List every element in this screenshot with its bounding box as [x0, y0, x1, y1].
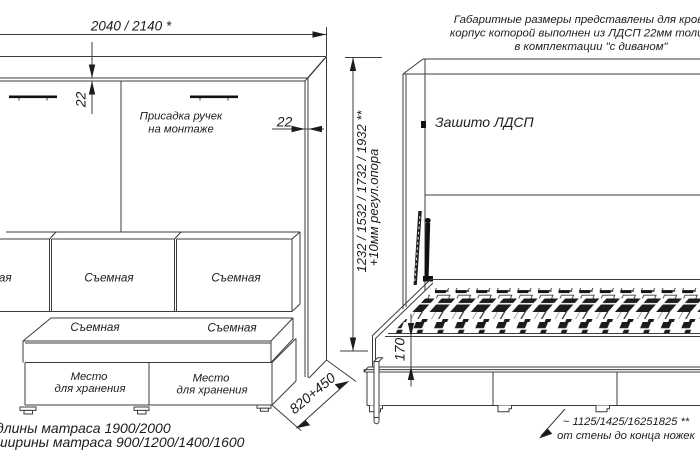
svg-text:ширины матраса 900/1200/1400/1: ширины матраса 900/1200/1400/1600	[0, 434, 245, 450]
svg-text:Съемная: Съемная	[70, 321, 120, 334]
svg-text:22: 22	[276, 114, 293, 130]
svg-text:в комплектации "с диваном": в комплектации "с диваном"	[514, 41, 668, 53]
svg-text:Съемная: Съемная	[207, 322, 257, 335]
svg-text:для хранения: для хранения	[54, 383, 125, 395]
svg-text:170: 170	[392, 338, 408, 362]
svg-text:Съемная: Съемная	[0, 272, 12, 285]
svg-text:Габаритные размеры представлен: Габаритные размеры представлены для кров…	[454, 14, 700, 26]
svg-text:~ 1125/1425/16251825 **: ~ 1125/1425/16251825 **	[563, 416, 690, 428]
svg-text:22: 22	[73, 92, 89, 109]
svg-text:Съемная: Съемная	[211, 272, 261, 285]
svg-text:для хранения: для хранения	[176, 385, 247, 397]
svg-text:Съемная: Съемная	[84, 272, 134, 285]
svg-text:Присадка ручек: Присадка ручек	[140, 111, 223, 123]
svg-text:820+450: 820+450	[286, 369, 338, 417]
svg-text:Место: Место	[71, 371, 108, 383]
svg-text:Место: Место	[193, 373, 230, 385]
svg-text:Зашито ЛДСП: Зашито ЛДСП	[435, 114, 535, 130]
svg-text:+10мм регул.опора: +10мм регул.опора	[366, 149, 381, 267]
svg-text:2040 / 2140 *: 2040 / 2140 *	[90, 19, 172, 34]
svg-text:на монтаже: на монтаже	[148, 124, 214, 136]
svg-text:от стены до конца ножек: от стены до конца ножек	[557, 430, 695, 442]
svg-text:корпус которой выполнен из ЛДС: корпус которой выполнен из ЛДСП 22мм тол…	[450, 28, 700, 40]
